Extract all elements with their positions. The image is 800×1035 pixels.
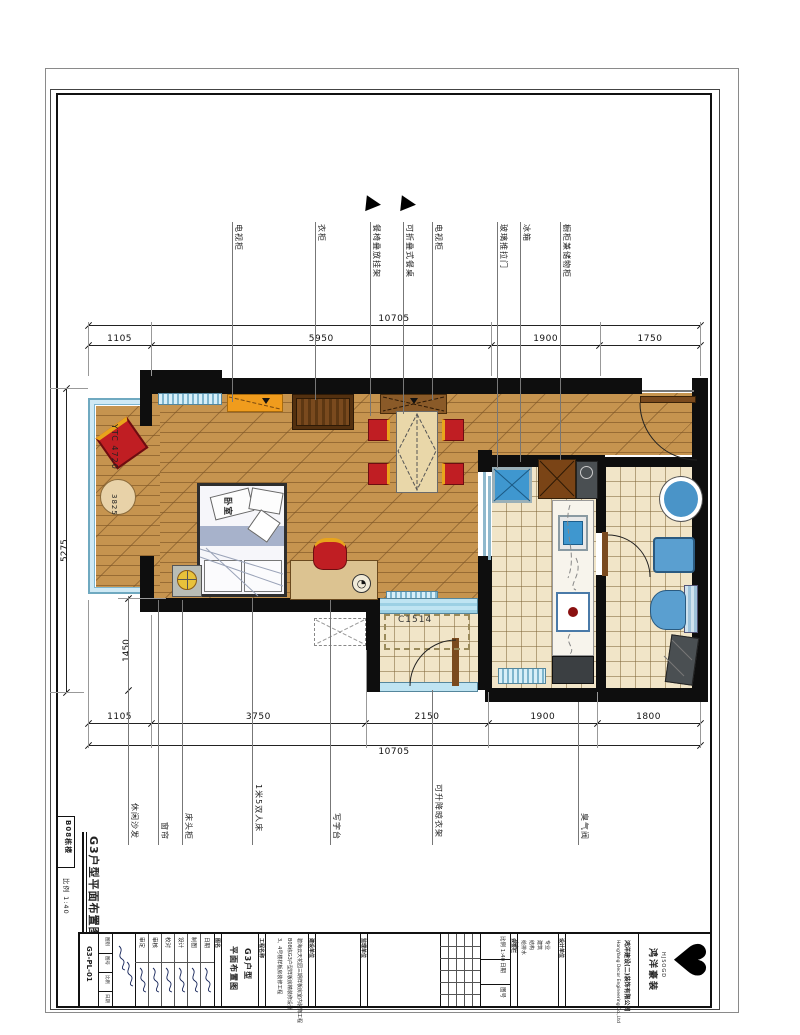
kitchen-mat: [498, 668, 546, 684]
tb-sig-divider: [187, 934, 188, 1006]
dim-ext: [50, 692, 84, 693]
callout-label: 窗帘: [159, 822, 170, 840]
toilet-bowl: [650, 590, 686, 630]
tb-role-label: 设计: [176, 937, 183, 948]
signature-mark: [137, 966, 148, 994]
dim-value: 3750: [246, 712, 271, 722]
callout-label: 床头柜: [183, 813, 194, 840]
scale-label-left: 比例 1:40: [60, 878, 71, 915]
callout-label: 臭气阀: [579, 813, 590, 840]
dining-stool: [368, 463, 390, 485]
mattress-box: [204, 560, 242, 592]
swing-arrow-icon: [410, 398, 418, 404]
dim-ext: [597, 692, 598, 748]
tb-header-gongcheng: 工程名称: [258, 938, 264, 958]
utility-bottom-sill: [370, 682, 478, 692]
callout-line: [330, 600, 331, 845]
glass-sliding-door-leaf: [488, 476, 491, 560]
window-code-left: YTC 4720: [109, 424, 120, 470]
drawing-title: G3户型平面布置图: [87, 836, 100, 939]
tb-mini-label: 图别: [103, 937, 109, 946]
wall-top: [140, 378, 642, 394]
dining-stool: [442, 463, 464, 485]
section-marker-icon: [365, 195, 382, 212]
kitchen-sink: [492, 467, 532, 503]
cooktop-burner: [568, 607, 578, 617]
fridge: [538, 459, 576, 499]
drawing-number: G3-PL-01: [83, 946, 94, 982]
dim-ext: [700, 322, 701, 376]
dim-ext: [88, 600, 89, 748]
wall-kitchen-left: [478, 556, 492, 614]
signature-mark: [189, 966, 200, 994]
tb-role-label: 制图: [189, 937, 196, 948]
wall-kitchen-bath-lower: [596, 575, 606, 688]
tb-drawing-name-1: G3户型: [242, 948, 252, 980]
entry-door-leaf: [640, 396, 696, 403]
swing-arrow-icon: [262, 398, 270, 404]
tb-huiqian-line: 专业: [544, 940, 550, 950]
washing-machine: [653, 537, 695, 573]
tb-divider: [98, 991, 112, 992]
signature-mark: [150, 966, 161, 994]
dim-ext: [366, 650, 367, 748]
callout-label: 玻璃推拉门: [498, 224, 509, 269]
tb-role-label: 审核: [150, 937, 157, 948]
tb-drawing-name-2: 平面布置图: [228, 946, 238, 991]
title-underline: [82, 832, 84, 944]
tb-project-line: 碧海云天花园三期样板房室内装饰工程: [296, 938, 302, 1023]
tb-sig-divider: [161, 934, 162, 1006]
section-marker-icon: [400, 195, 417, 212]
dim-ext: [600, 322, 601, 376]
window-code-bottom: C1514: [398, 615, 432, 625]
dining-table: [396, 411, 438, 493]
tb-grid-row: [440, 958, 480, 959]
dim-ext: [88, 322, 89, 376]
callout-line: [315, 222, 316, 400]
callout-label: 1米5双人床: [253, 784, 264, 832]
mattress-box: [244, 560, 282, 592]
range-unit: [552, 656, 594, 684]
glass-sliding-door: [483, 472, 486, 556]
ac-platform: [314, 618, 366, 646]
tb-divider: [480, 959, 510, 960]
headboard-window-strip: [158, 393, 222, 405]
tb-scale: 比例 1:40: [498, 936, 505, 961]
tb-divider: [98, 972, 112, 973]
callout-label: 橱柜兼储物柜: [561, 224, 572, 278]
tb-company-cn: 鸿洋建设(二)装饰有限公司: [622, 940, 630, 1012]
dim-ext: [50, 388, 88, 389]
wall-left-top: [140, 378, 152, 426]
callout-label: 电视柜: [433, 224, 444, 251]
callout-label: 休闲沙发: [129, 803, 140, 839]
counter-sink-bowl: [563, 521, 583, 545]
desk-stool: [313, 538, 347, 570]
dim-line: [88, 723, 700, 724]
callout-line: [182, 600, 183, 845]
bedroom-label: 卧室: [221, 497, 232, 516]
title-block: G3-PL-01 图名 G3户型 平面布置图 工程名称 建设单位 监理单位 会签…: [78, 932, 712, 1008]
signature-mark: [124, 960, 135, 988]
tb-huiqian-line: 结构: [528, 940, 534, 950]
signature-mark: [163, 966, 174, 994]
callout-label: 可折叠式餐桌: [404, 224, 415, 278]
callout-label: 写字台: [331, 813, 342, 840]
tb-grid-row: [440, 982, 480, 983]
window-dim-left: 3825: [108, 494, 119, 516]
wall-utility-left: [366, 598, 380, 692]
tb-sig-divider: [148, 934, 149, 1006]
bathroom-door-leaf: [602, 532, 608, 576]
dim-value: 1750: [638, 334, 663, 344]
wash-basin: [660, 477, 702, 521]
dim-value: 5950: [309, 334, 334, 344]
tb-sig-row-divider: [135, 962, 214, 963]
tb-divider: [98, 953, 112, 954]
dim-value-left: 5275: [60, 539, 71, 562]
entry-door-head: [642, 390, 694, 392]
dim-ext: [488, 692, 489, 748]
compass-icon: ◔: [352, 574, 371, 593]
dim-line-overall: [88, 745, 700, 746]
dim-value-overall: 10705: [378, 747, 409, 757]
tb-project-line: B08栋G3户型样板房精装修设计: [286, 938, 292, 1010]
tb-huiqian-line: 给排水: [520, 940, 526, 955]
tb-project-line: 3、4号楼样板房装修工程: [276, 938, 282, 994]
tb-huiqian-line: 电气: [512, 940, 518, 950]
callout-line: [520, 222, 521, 462]
signature-mark: [202, 966, 213, 994]
wall-bottom-main: [140, 598, 380, 612]
tb-sig-divider: [200, 934, 201, 1006]
dim-ext: [118, 598, 166, 599]
company-logo-icon: ♥: [666, 940, 710, 980]
tb-grid-row: [440, 994, 480, 995]
dim-line-overall: [88, 325, 700, 326]
tb-role-label: 审定: [137, 937, 144, 948]
wall-left-bottom: [140, 556, 154, 612]
callout-label: 可升降晾衣架: [433, 784, 444, 838]
callout-line: [158, 600, 159, 845]
dim-ext: [700, 702, 701, 748]
tb-date-label: 日期: [498, 962, 505, 973]
tb-grid-row: [440, 970, 480, 971]
tb-divider: [480, 984, 510, 985]
wardrobe-rail: [296, 398, 350, 426]
dim-ext: [151, 322, 152, 376]
toilet-tank: [684, 585, 698, 633]
tb-mini-label: 图号: [103, 956, 109, 965]
dining-stool: [368, 419, 390, 441]
tb-mini-label: 比例: [103, 975, 109, 984]
wall-bath-top: [605, 457, 695, 467]
dim-line: [88, 345, 700, 346]
utility-window-band: [370, 598, 478, 614]
tb-sig-divider: [174, 934, 175, 1006]
callout-label: 电视柜: [233, 224, 244, 251]
dim-value-overall: 10705: [378, 314, 409, 324]
callout-label: 餐椅叠放挂架: [371, 224, 382, 278]
tb-mini-label: 日期: [103, 994, 109, 1003]
stove-burner: [580, 466, 593, 479]
tb-header-jianshe: 建设单位: [308, 938, 314, 958]
building-label: B08栋楼: [62, 820, 73, 854]
dim-value: 1800: [636, 712, 661, 722]
tb-header-jianli: 监理单位: [360, 938, 366, 958]
dim-ext: [491, 322, 492, 376]
tv-cabinet: [227, 394, 283, 412]
dim-value: 1900: [530, 712, 555, 722]
utility-window-strip: [386, 591, 438, 599]
callout-label: 衣柜: [316, 224, 327, 242]
tb-number-label: 图号: [498, 987, 505, 998]
floor-lamp-icon: [177, 570, 197, 590]
tb-role-label: 校对: [163, 937, 170, 948]
tb-header-sheji: 设计单位: [558, 938, 564, 958]
tb-company-en: HongYang Decor Engineering Co.,Ltd: [614, 940, 620, 1023]
tb-huiqian-line: 建筑: [536, 940, 542, 950]
dim-ext: [151, 615, 152, 748]
tb-role-label: 日期: [202, 937, 209, 948]
wall-utility-kitchen: [478, 612, 492, 690]
callout-label: 冰箱: [521, 224, 532, 242]
signature-mark: [176, 966, 187, 994]
dining-stool: [442, 419, 464, 441]
dim-value: 1105: [107, 334, 132, 344]
tb-grid-row: [440, 946, 480, 947]
brand-cn: 鸿洋豪装: [646, 948, 657, 992]
dim-value: 2150: [415, 712, 440, 722]
dim-value: 1900: [533, 334, 558, 344]
tb-header-tuming: 图名: [214, 938, 220, 948]
